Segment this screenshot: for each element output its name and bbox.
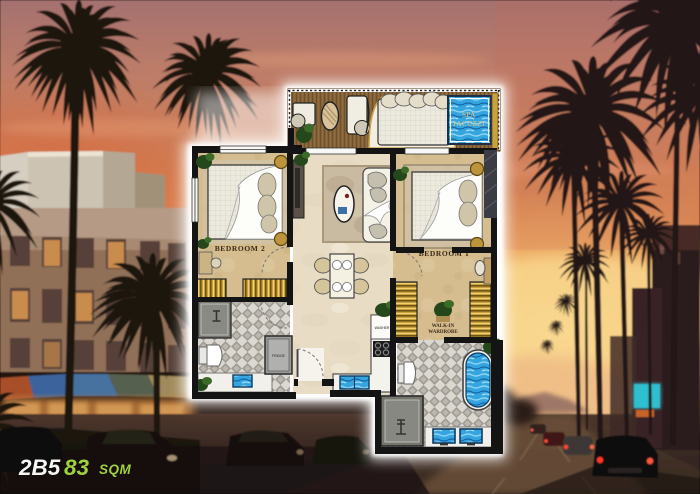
svg-text:FRIDGE: FRIDGE xyxy=(272,354,286,358)
svg-text:WASHER: WASHER xyxy=(375,326,390,330)
svg-text:WARDROBE: WARDROBE xyxy=(428,330,458,335)
svg-text:BEDROOM 2: BEDROOM 2 xyxy=(215,244,266,253)
svg-text:SPA: SPA xyxy=(462,111,476,119)
svg-text:SQM: SQM xyxy=(99,462,132,477)
svg-text:WALK-IN: WALK-IN xyxy=(432,324,455,329)
svg-text:JACUZZI: JACUZZI xyxy=(453,120,485,128)
svg-text:2B5: 2B5 xyxy=(18,455,61,480)
svg-text:83: 83 xyxy=(64,455,90,480)
